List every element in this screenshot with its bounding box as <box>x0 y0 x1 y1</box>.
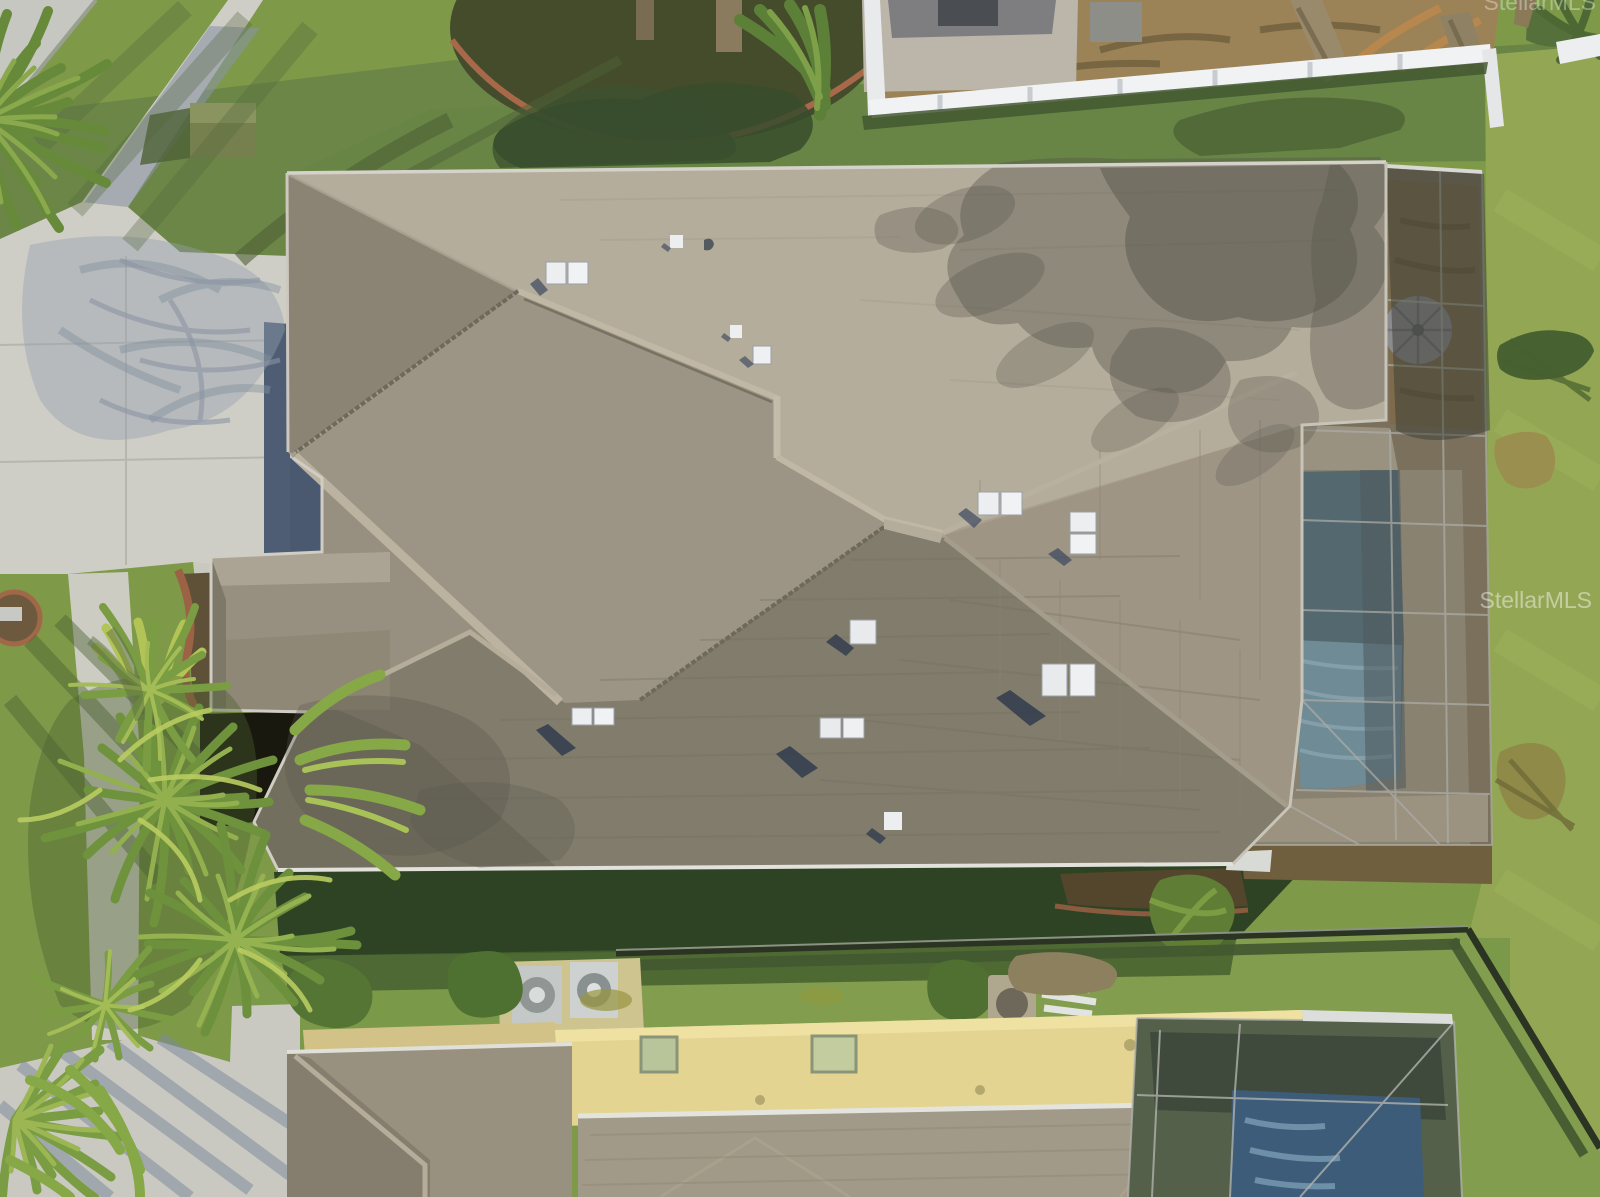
svg-text:StellarMLS: StellarMLS <box>1480 587 1592 613</box>
svg-text:StellarMLS: StellarMLS <box>1484 0 1596 15</box>
